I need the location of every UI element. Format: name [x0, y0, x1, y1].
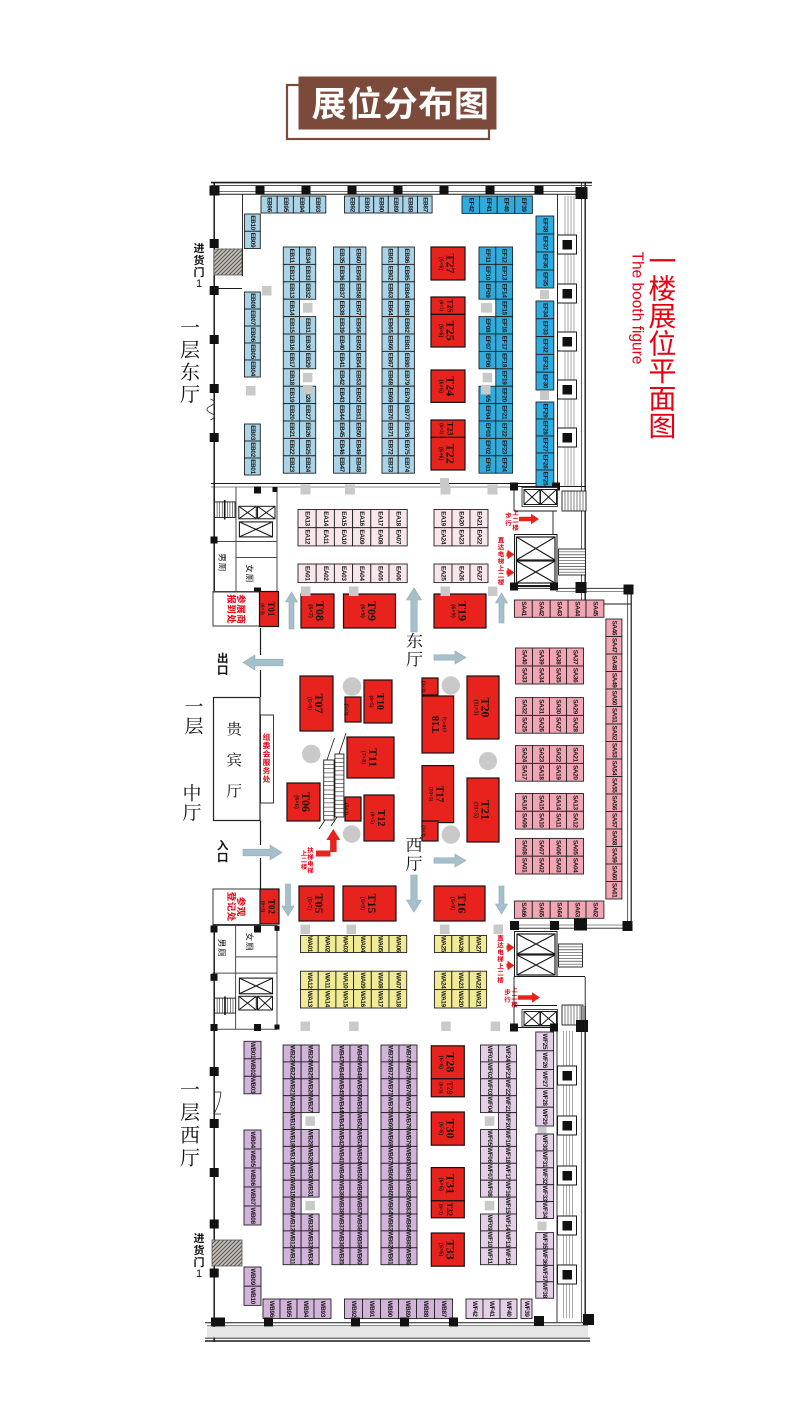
svg-text:EF22: EF22 [501, 423, 508, 438]
svg-text:1: 1 [196, 278, 202, 290]
svg-text:EB52: EB52 [354, 388, 361, 403]
svg-text:EB23: EB23 [288, 457, 295, 472]
svg-text:(6×6): (6×6) [437, 1056, 444, 1069]
svg-text:1: 1 [196, 1268, 202, 1280]
svg-text:EB38: EB38 [338, 301, 345, 316]
svg-text:EB15: EB15 [288, 318, 295, 333]
svg-text:EB56: EB56 [354, 318, 361, 333]
svg-text:T10: T10 [374, 693, 385, 710]
svg-text:EB26: EB26 [304, 422, 311, 437]
svg-text:WB34: WB34 [307, 1248, 314, 1265]
svg-text:WF31: WF31 [541, 1152, 548, 1168]
svg-text:EB76: EB76 [403, 422, 410, 437]
svg-text:EB12: EB12 [288, 266, 295, 281]
svg-text:EF29: EF29 [541, 404, 548, 419]
svg-text:EB04: EB04 [249, 361, 256, 376]
svg-text:EB50: EB50 [354, 422, 361, 437]
svg-text:EB48: EB48 [354, 457, 361, 472]
svg-text:SA61: SA61 [610, 883, 617, 898]
svg-text:EF27: EF27 [541, 438, 548, 453]
svg-text:T22: T22 [443, 444, 457, 464]
svg-text:EF11: EF11 [484, 249, 491, 263]
svg-text:SA23: SA23 [538, 747, 545, 762]
svg-text:SA20: SA20 [572, 765, 579, 780]
svg-text:EA04: EA04 [358, 566, 365, 581]
svg-text:WB30: WB30 [307, 1164, 314, 1181]
svg-text:EB45: EB45 [338, 422, 345, 437]
svg-text:WB77: WB77 [405, 1096, 412, 1113]
svg-text:T30: T30 [443, 1119, 457, 1139]
svg-text:SA62: SA62 [592, 902, 599, 917]
svg-text:EB84: EB84 [403, 283, 410, 298]
svg-text:WB73: WB73 [387, 1045, 394, 1062]
svg-text:SA45: SA45 [592, 601, 599, 616]
svg-text:EB01: EB01 [249, 459, 256, 474]
svg-text:EA03: EA03 [340, 566, 347, 581]
svg-text:EA26: EA26 [458, 566, 465, 581]
svg-text:SA21: SA21 [572, 747, 579, 762]
svg-text:EB69: EB69 [387, 388, 394, 403]
svg-text:WB93: WB93 [319, 1301, 326, 1318]
svg-text:WB94: WB94 [302, 1301, 309, 1318]
svg-text:WB78: WB78 [405, 1113, 412, 1130]
svg-text:WB29: WB29 [307, 1147, 314, 1164]
svg-text:T08: T08 [313, 601, 327, 621]
svg-text:WB37: WB37 [338, 1214, 345, 1231]
svg-text:WB81: WB81 [405, 1164, 412, 1181]
svg-text:EF39: EF39 [520, 198, 527, 213]
svg-text:EB87: EB87 [421, 197, 428, 212]
svg-text:WF26: WF26 [541, 1052, 548, 1068]
svg-text:WA27: WA27 [474, 936, 481, 953]
svg-text:EF28: EF28 [541, 421, 548, 436]
svg-text:WF41: WF41 [488, 1301, 495, 1317]
svg-text:T16: T16 [455, 893, 469, 913]
svg-text:EA17: EA17 [376, 511, 383, 526]
svg-text:(6×7): (6×7) [306, 897, 313, 910]
svg-text:SA40: SA40 [521, 650, 528, 665]
svg-text:WB71: WB71 [387, 1079, 394, 1096]
svg-text:WF05: WF05 [486, 1130, 493, 1146]
svg-text:EB21: EB21 [288, 422, 295, 437]
svg-text:EF41: EF41 [485, 198, 492, 213]
svg-text:SA25: SA25 [521, 717, 528, 732]
svg-text:EF23: EF23 [501, 440, 508, 455]
svg-text:WA20: WA20 [457, 991, 464, 1008]
svg-text:WB24: WB24 [307, 1045, 314, 1062]
svg-text:EA13: EA13 [304, 511, 311, 526]
svg-text:WA03: WA03 [341, 936, 348, 953]
svg-text:EA21: EA21 [476, 511, 483, 526]
svg-text:WB14: WB14 [289, 1197, 296, 1214]
svg-text:WF18: WF18 [504, 1147, 511, 1163]
svg-text:WB04: WB04 [249, 1131, 256, 1148]
svg-text:(10×5): (10×5) [441, 717, 448, 732]
svg-text:WF35: WF35 [541, 1233, 548, 1249]
svg-text:EF20: EF20 [501, 388, 508, 403]
svg-text:SA27: SA27 [555, 717, 562, 732]
svg-text:EB55: EB55 [354, 335, 361, 350]
svg-text:WB41: WB41 [338, 1147, 345, 1164]
svg-text:EB43: EB43 [338, 388, 345, 403]
svg-text:(6×9): (6×9) [450, 604, 457, 617]
svg-text:EB20: EB20 [288, 405, 295, 420]
svg-text:EF07: EF07 [484, 336, 491, 351]
svg-text:SA42: SA42 [538, 601, 545, 616]
svg-text:EB06: EB06 [249, 327, 256, 342]
svg-text:WB07: WB07 [249, 1188, 256, 1205]
svg-text:SA07: SA07 [538, 840, 545, 855]
svg-text:WB25: WB25 [307, 1062, 314, 1079]
svg-text:WB55: WB55 [356, 1164, 363, 1181]
svg-text:WA24: WA24 [440, 972, 447, 989]
svg-text:WA02: WA02 [324, 936, 331, 953]
svg-text:WA01: WA01 [306, 936, 313, 953]
svg-text:WB58: WB58 [356, 1214, 363, 1231]
svg-text:WB19: WB19 [289, 1113, 296, 1130]
svg-text:SA30: SA30 [555, 699, 562, 714]
svg-text:WA12: WA12 [306, 972, 313, 989]
svg-text:EB36: EB36 [338, 266, 345, 281]
svg-text:EB94: EB94 [298, 197, 305, 212]
svg-text:(6×6): (6×6) [438, 324, 445, 337]
svg-text:SA56: SA56 [610, 796, 617, 811]
svg-text:EF14: EF14 [501, 284, 508, 299]
svg-text:WB42: WB42 [338, 1130, 345, 1147]
svg-text:SA02: SA02 [538, 858, 545, 873]
svg-text:EB27: EB27 [304, 405, 311, 420]
svg-text:WF32: WF32 [541, 1168, 548, 1184]
svg-text:WB74: WB74 [405, 1045, 412, 1062]
svg-text:T23: T23 [445, 422, 454, 435]
svg-text:EA23: EA23 [458, 530, 465, 545]
svg-text:EB02: EB02 [249, 442, 256, 457]
svg-text:WA13: WA13 [306, 991, 313, 1008]
svg-text:EF02: EF02 [484, 440, 491, 455]
svg-text:(6×9): (6×9) [449, 897, 456, 910]
svg-text:EF38: EF38 [541, 218, 548, 233]
svg-text:WB70: WB70 [387, 1096, 394, 1113]
svg-text:SA65: SA65 [538, 902, 545, 917]
svg-text:WA15: WA15 [341, 991, 348, 1008]
svg-text:WF17: WF17 [504, 1164, 511, 1180]
svg-text:SA57: SA57 [610, 813, 617, 828]
svg-text:WA06: WA06 [394, 936, 401, 953]
svg-text:WB62: WB62 [387, 1231, 394, 1248]
svg-text:WA07: WA07 [394, 972, 401, 989]
svg-text:SA58: SA58 [610, 831, 617, 846]
svg-text:(6×3): (6×3) [438, 423, 443, 435]
svg-text:WB36: WB36 [338, 1231, 345, 1248]
svg-text:EB17: EB17 [288, 353, 295, 368]
svg-text:SA50: SA50 [610, 691, 617, 706]
svg-text:(6×6): (6×6) [438, 257, 445, 270]
svg-text:WB03: WB03 [249, 1077, 256, 1094]
svg-text:WB17: WB17 [289, 1147, 296, 1164]
svg-text:EA22: EA22 [476, 530, 483, 545]
svg-text:EB40: EB40 [338, 335, 345, 350]
svg-text:SA06: SA06 [555, 840, 562, 855]
svg-text:WB23: WB23 [289, 1045, 296, 1062]
svg-text:WF07: WF07 [486, 1164, 493, 1180]
svg-text:WB92: WB92 [350, 1301, 357, 1318]
svg-text:SA10: SA10 [538, 813, 545, 828]
svg-text:WB15: WB15 [289, 1181, 296, 1198]
svg-text:WA04: WA04 [359, 936, 366, 953]
svg-text:T27: T27 [443, 253, 457, 273]
svg-text:EA12: EA12 [304, 530, 311, 545]
svg-text:EB16: EB16 [288, 335, 295, 350]
svg-text:EB93: EB93 [314, 197, 321, 212]
svg-text:T32: T32 [445, 1203, 454, 1216]
svg-text:EF08: EF08 [484, 318, 491, 333]
svg-text:EB67: EB67 [387, 353, 394, 368]
svg-text:WB28: WB28 [307, 1130, 314, 1147]
svg-text:WB40: WB40 [338, 1164, 345, 1181]
svg-text:(8×5): (8×5) [369, 812, 376, 824]
svg-text:(6×6): (6×6) [293, 795, 300, 808]
svg-text:EA15: EA15 [340, 511, 347, 526]
svg-text:WB67: WB67 [387, 1147, 394, 1164]
svg-text:EA07: EA07 [395, 530, 402, 545]
svg-text:EF17: EF17 [501, 336, 508, 351]
svg-text:WA11: WA11 [324, 973, 331, 989]
svg-text:WF24: WF24 [504, 1046, 511, 1062]
svg-text:WA08: WA08 [377, 972, 384, 989]
svg-text:EB72: EB72 [387, 440, 394, 455]
svg-text:(6×6): (6×6) [437, 1177, 444, 1190]
svg-text:SA33: SA33 [521, 668, 528, 683]
svg-text:(8×5): (8×5) [368, 695, 375, 707]
svg-text:WB90: WB90 [386, 1301, 393, 1318]
svg-text:WF23: WF23 [504, 1063, 511, 1079]
svg-text:EF31: EF31 [541, 356, 548, 371]
svg-text:EB31: EB31 [304, 318, 311, 333]
svg-text:SA36: SA36 [572, 668, 579, 683]
svg-text:EF36: EF36 [541, 254, 548, 269]
svg-text:SA32: SA32 [521, 699, 528, 714]
svg-text:WB13: WB13 [289, 1214, 296, 1231]
svg-text:EA05: EA05 [376, 566, 383, 581]
svg-text:WB86: WB86 [405, 1248, 412, 1265]
svg-text:WF27: WF27 [541, 1071, 548, 1087]
svg-text:WF22: WF22 [504, 1079, 511, 1095]
svg-text:SA46: SA46 [610, 621, 617, 636]
svg-text:EB07: EB07 [249, 310, 256, 325]
svg-text:WF33: WF33 [541, 1185, 548, 1201]
svg-text:T29: T29 [445, 1081, 454, 1094]
svg-text:T11: T11 [366, 748, 380, 767]
svg-text:(11×5): (11×5) [473, 802, 480, 818]
svg-text:EB37: EB37 [338, 283, 345, 298]
svg-text:EA16: EA16 [358, 511, 365, 526]
svg-text:WB89: WB89 [404, 1301, 411, 1318]
svg-text:WB26: WB26 [307, 1079, 314, 1096]
svg-text:EB70: EB70 [387, 405, 394, 420]
svg-text:SA09: SA09 [521, 813, 528, 828]
svg-text:WB27: WB27 [307, 1096, 314, 1113]
svg-text:EB68: EB68 [387, 370, 394, 385]
svg-text:WB22: WB22 [289, 1062, 296, 1079]
svg-text:EA06: EA06 [395, 566, 402, 581]
svg-text:EB95: EB95 [282, 197, 289, 212]
svg-text:EB18: EB18 [288, 370, 295, 385]
svg-text:EA02: EA02 [322, 566, 329, 581]
svg-text:WB65: WB65 [387, 1181, 394, 1198]
svg-text:EF04: EF04 [484, 405, 491, 420]
svg-text:(6×3): (6×3) [259, 603, 266, 615]
svg-text:EB62: EB62 [387, 266, 394, 281]
svg-text:EB71: EB71 [387, 422, 394, 437]
svg-text:WF01: WF01 [486, 1046, 493, 1062]
svg-text:WB57: WB57 [356, 1197, 363, 1214]
svg-text:EA19: EA19 [440, 511, 447, 526]
svg-text:WB20: WB20 [289, 1096, 296, 1113]
svg-text:T21: T21 [478, 800, 492, 820]
svg-text:EB83: EB83 [403, 301, 410, 316]
svg-text:EB42: EB42 [338, 370, 345, 385]
svg-text:T28: T28 [443, 1052, 457, 1072]
svg-text:EB61: EB61 [387, 248, 394, 263]
svg-text:WF37: WF37 [541, 1266, 548, 1282]
svg-text:EA10: EA10 [340, 530, 347, 545]
svg-text:WB47: WB47 [338, 1045, 345, 1062]
svg-text:(6×6): (6×6) [438, 447, 445, 460]
svg-text:WA10: WA10 [341, 972, 348, 989]
svg-text:EB54: EB54 [354, 353, 361, 368]
svg-text:EB19: EB19 [288, 388, 295, 403]
svg-text:SA64: SA64 [556, 902, 563, 917]
svg-text:T12: T12 [375, 810, 386, 827]
svg-text:T07: T07 [312, 693, 326, 713]
svg-text:EB89: EB89 [392, 197, 399, 212]
svg-text:EF40: EF40 [503, 198, 510, 213]
svg-text:EF32: EF32 [541, 339, 548, 354]
svg-text:EB88: EB88 [407, 197, 414, 212]
svg-text:WB46: WB46 [338, 1062, 345, 1079]
svg-text:SA66: SA66 [520, 902, 527, 917]
svg-text:SA49: SA49 [610, 673, 617, 688]
svg-text:WB75: WB75 [405, 1062, 412, 1079]
svg-text:SA60: SA60 [610, 866, 617, 881]
svg-text:WF21: WF21 [504, 1096, 511, 1112]
svg-text:EB30: EB30 [304, 335, 311, 350]
svg-text:EF16: EF16 [501, 318, 508, 333]
svg-text:(6×3): (6×3) [438, 1082, 443, 1094]
svg-text:SA28: SA28 [572, 717, 579, 732]
svg-text:WF38: WF38 [541, 1282, 548, 1298]
svg-text:WB05: WB05 [249, 1150, 256, 1167]
svg-text:(6×3): (6×3) [438, 1204, 443, 1216]
svg-text:EB73: EB73 [387, 457, 394, 472]
svg-text:WB43: WB43 [338, 1113, 345, 1130]
svg-text:SA12: SA12 [572, 813, 579, 828]
svg-text:(6×7): (6×7) [307, 604, 314, 617]
svg-text:SA59: SA59 [610, 848, 617, 863]
svg-text:WF15: WF15 [504, 1198, 511, 1214]
svg-text:WB53: WB53 [356, 1130, 363, 1147]
svg-text:SA22: SA22 [555, 747, 562, 762]
svg-text:WF19: WF19 [504, 1130, 511, 1146]
svg-text:EF42: EF42 [467, 198, 474, 213]
svg-text:SA39: SA39 [538, 650, 545, 665]
svg-text:SA17: SA17 [521, 765, 528, 780]
svg-text:WB44: WB44 [338, 1096, 345, 1113]
svg-text:SA63: SA63 [574, 902, 581, 917]
svg-text:SA16: SA16 [521, 795, 528, 810]
svg-text:EB41: EB41 [338, 353, 345, 368]
svg-text:WA26: WA26 [457, 936, 464, 953]
svg-text:EF34: EF34 [541, 303, 548, 318]
svg-text:EF37: EF37 [541, 236, 548, 251]
svg-text:EF33: EF33 [541, 321, 548, 336]
svg-text:EB09: EB09 [249, 233, 256, 248]
svg-text:(6×3): (6×3) [259, 901, 266, 913]
svg-text:EF09: EF09 [484, 284, 491, 299]
svg-text:WA19: WA19 [440, 991, 447, 1008]
svg-text:WA17: WA17 [377, 991, 384, 1008]
svg-text:WB85: WB85 [405, 1231, 412, 1248]
svg-text:WB21: WB21 [289, 1079, 296, 1096]
svg-text:WB06: WB06 [249, 1169, 256, 1186]
svg-text:WA22: WA22 [474, 972, 481, 989]
svg-text:EF06: EF06 [484, 353, 491, 368]
svg-text:SA14: SA14 [555, 795, 562, 810]
svg-text:SA01: SA01 [521, 858, 528, 873]
svg-text:SA37: SA37 [572, 650, 579, 665]
svg-text:WB32: WB32 [307, 1214, 314, 1231]
svg-text:WB91: WB91 [368, 1301, 375, 1318]
svg-text:WA21: WA21 [474, 991, 481, 1008]
svg-text:WB60: WB60 [356, 1248, 363, 1265]
svg-text:(11×5): (11×5) [473, 699, 480, 715]
svg-text:WB64: WB64 [387, 1197, 394, 1214]
svg-text:WA23: WA23 [457, 972, 464, 989]
svg-text:EB86: EB86 [403, 248, 410, 263]
svg-text:SA26: SA26 [538, 717, 545, 732]
svg-text:T09: T09 [365, 601, 379, 621]
svg-text:SA34: SA34 [538, 668, 545, 683]
svg-text:WB63: WB63 [387, 1214, 394, 1231]
svg-text:EB79: EB79 [403, 370, 410, 385]
svg-text:T05: T05 [312, 893, 326, 913]
svg-text:T20: T20 [478, 697, 492, 717]
svg-text:EF13: EF13 [501, 266, 508, 281]
svg-text:WF04: WF04 [486, 1096, 493, 1112]
svg-text:WF13: WF13 [504, 1232, 511, 1248]
svg-text:WB68: WB68 [387, 1130, 394, 1147]
svg-text:WB09: WB09 [249, 1268, 256, 1285]
svg-text:WF34: WF34 [541, 1202, 548, 1218]
svg-text:WB88: WB88 [422, 1301, 429, 1318]
svg-text:EB74: EB74 [403, 457, 410, 472]
svg-text:WF16: WF16 [504, 1181, 511, 1197]
svg-text:WB33: WB33 [307, 1231, 314, 1248]
svg-text:(5×3): (5×3) [343, 703, 350, 715]
svg-text:T18: T18 [431, 716, 442, 734]
svg-text:EA24: EA24 [440, 530, 447, 545]
svg-text:SA11: SA11 [555, 813, 562, 828]
svg-text:WB48: WB48 [356, 1045, 363, 1062]
svg-text:SA51: SA51 [610, 708, 617, 723]
svg-text:SA08: SA08 [521, 840, 528, 855]
svg-text:WB76: WB76 [405, 1079, 412, 1096]
svg-text:WB82: WB82 [405, 1181, 412, 1198]
svg-text:WA25: WA25 [440, 936, 447, 953]
svg-text:SA41: SA41 [520, 601, 527, 616]
svg-text:EB51: EB51 [354, 405, 361, 420]
svg-text:EB29: EB29 [304, 353, 311, 368]
